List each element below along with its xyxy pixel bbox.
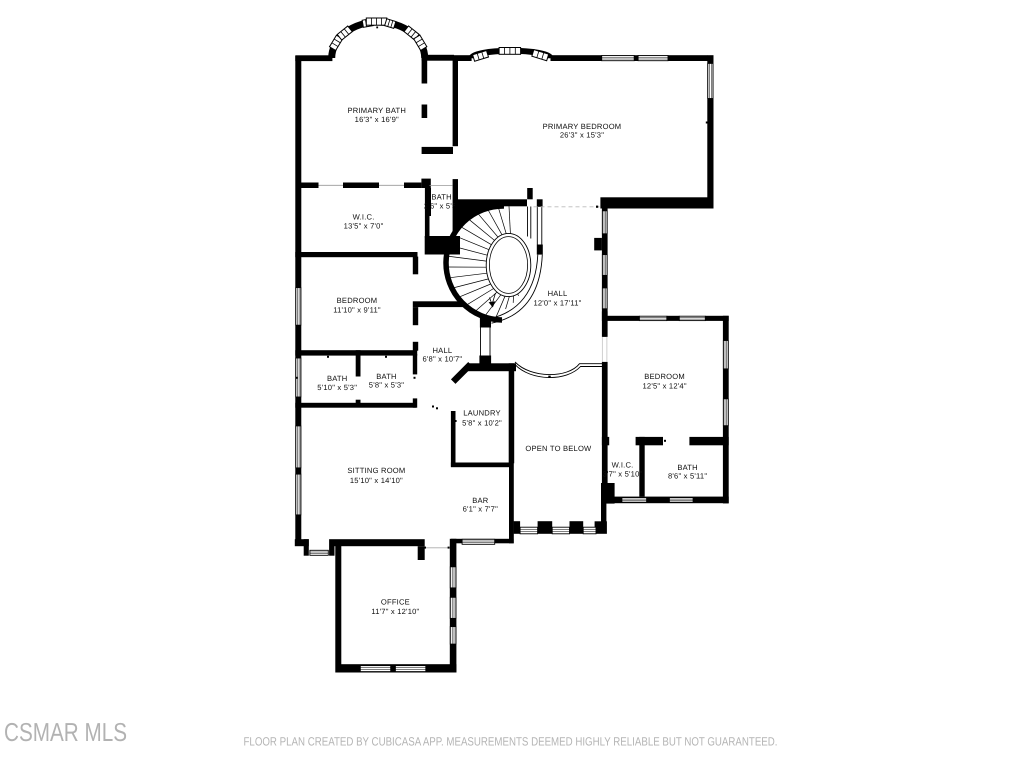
- svg-text:BATH: BATH: [431, 193, 452, 202]
- svg-text:6'1" x 7'7": 6'1" x 7'7": [463, 505, 499, 514]
- svg-text:HALL: HALL: [548, 289, 568, 298]
- svg-text:BAR: BAR: [472, 496, 489, 505]
- svg-text:16'3" x 16'9": 16'3" x 16'9": [355, 115, 399, 124]
- svg-text:3'7" x 5'10": 3'7" x 5'10": [603, 470, 643, 479]
- svg-text:12'0" x 17'11": 12'0" x 17'11": [533, 299, 581, 308]
- svg-text:W.I.C.: W.I.C.: [353, 213, 375, 222]
- svg-text:13'5" x 7'0": 13'5" x 7'0": [344, 221, 384, 230]
- svg-text:11'7" x 12'10": 11'7" x 12'10": [371, 607, 419, 616]
- svg-text:6'8" x 10'7": 6'8" x 10'7": [422, 355, 462, 364]
- svg-text:26'3" x 15'3": 26'3" x 15'3": [560, 131, 604, 140]
- svg-text:PRIMARY BATH: PRIMARY BATH: [348, 106, 407, 115]
- svg-text:BATH: BATH: [376, 372, 397, 381]
- svg-text:5'10" x 5'3": 5'10" x 5'3": [317, 383, 357, 392]
- svg-text:CSMAR MLS: CSMAR MLS: [4, 717, 127, 747]
- svg-text:15'10" x 14'10": 15'10" x 14'10": [350, 476, 403, 485]
- svg-text:W.I.C.: W.I.C.: [612, 460, 634, 469]
- svg-text:PRIMARY BEDROOM: PRIMARY BEDROOM: [543, 122, 622, 131]
- svg-text:BEDROOM: BEDROOM: [644, 372, 685, 381]
- svg-text:5'8" x 10'2": 5'8" x 10'2": [462, 419, 502, 428]
- svg-text:BATH: BATH: [327, 374, 348, 383]
- svg-text:BEDROOM: BEDROOM: [337, 296, 378, 305]
- svg-text:LAUNDRY: LAUNDRY: [463, 409, 501, 418]
- svg-text:SITTING ROOM: SITTING ROOM: [347, 466, 405, 475]
- svg-text:FLOOR PLAN CREATED BY CUBICASA: FLOOR PLAN CREATED BY CUBICASA APP. MEAS…: [244, 735, 778, 749]
- svg-text:8'6" x 5'11": 8'6" x 5'11": [668, 472, 707, 481]
- svg-text:12'5" x 12'4": 12'5" x 12'4": [642, 382, 686, 391]
- svg-text:OFFICE: OFFICE: [381, 598, 410, 607]
- svg-text:OPEN TO BELOW: OPEN TO BELOW: [525, 444, 592, 453]
- svg-text:5'8" x 5'3": 5'8" x 5'3": [369, 381, 405, 390]
- svg-text:11'10" x 9'11": 11'10" x 9'11": [333, 306, 381, 315]
- svg-text:BATH: BATH: [677, 463, 698, 472]
